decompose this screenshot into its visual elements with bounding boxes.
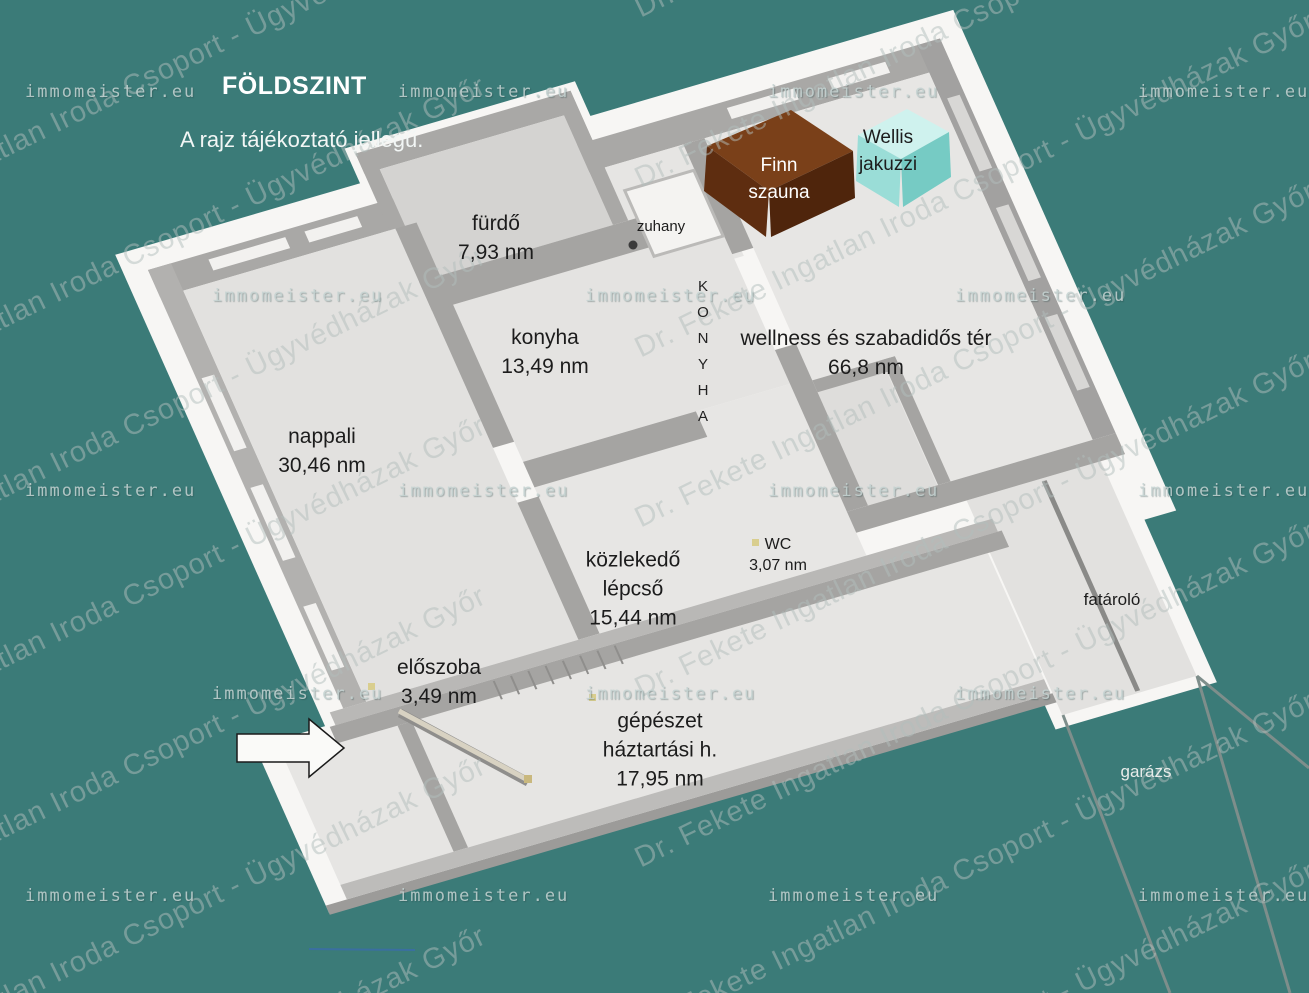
jacuzzi-name-line1: Wellis — [859, 124, 917, 151]
watermark-site: immomeister.eu — [25, 886, 196, 906]
watermark-site: immomeister.eu — [955, 286, 1126, 306]
room-name-line2: lépcső — [586, 575, 681, 604]
watermark-site: immomeister.eu — [212, 286, 383, 306]
jacuzzi-name-line2: jakuzzi — [859, 151, 917, 178]
room-area: 7,93 nm — [458, 238, 534, 267]
watermark-site: immomeister.eu — [768, 481, 939, 501]
room-name: nappali — [278, 422, 366, 451]
watermark-site: immomeister.eu — [25, 82, 196, 102]
room-label-konyha: konyha 13,49 nm — [501, 323, 589, 381]
room-label-eloszoba: előszoba 3,49 nm — [397, 653, 481, 711]
watermark-site: immomeister.eu — [768, 82, 939, 102]
room-name: zuhany — [637, 217, 685, 237]
room-name: konyha — [501, 323, 589, 352]
watermark-site: immomeister.eu — [1138, 82, 1309, 102]
watermark-site: immomeister.eu — [398, 481, 569, 501]
garage-outline — [1063, 676, 1309, 993]
sauna-name-line2: szauna — [748, 179, 809, 206]
garage-line-east — [1197, 676, 1290, 993]
watermark-site: immomeister.eu — [398, 886, 569, 906]
room-name: előszoba — [397, 653, 481, 682]
room-name: wellness és szabadidős tér — [741, 324, 992, 353]
room-area: 3,49 nm — [397, 682, 481, 711]
watermark-site: immomeister.eu — [212, 684, 383, 704]
room-label-furdo: fürdő 7,93 nm — [458, 209, 534, 267]
room-label-kozlekedo: közlekedő lépcső 15,44 nm — [586, 546, 681, 633]
underline-mark — [309, 949, 415, 950]
room-label-wellness: wellness és szabadidős tér 66,8 nm — [741, 324, 992, 382]
room-label-garazs: garázs — [1120, 761, 1171, 783]
watermark-site: immomeister.eu — [585, 286, 756, 306]
watermark-site: immomeister.eu — [398, 82, 569, 102]
page-title: FÖLDSZINT — [222, 72, 367, 101]
room-label-wc: WC 3,07 nm — [749, 534, 807, 576]
garage-line-west — [1063, 715, 1170, 993]
railing-end-cap — [524, 775, 532, 783]
room-label-fatarolo: fatároló — [1084, 589, 1141, 611]
watermark-site: immomeister.eu — [955, 684, 1126, 704]
shower-drain-dot — [629, 241, 638, 250]
room-area: 17,95 nm — [603, 765, 717, 794]
sauna-label: Finn szauna — [748, 152, 809, 206]
room-area: 3,07 nm — [749, 555, 807, 576]
room-label-nappali: nappali 30,46 nm — [278, 422, 366, 480]
room-name: fürdő — [458, 209, 534, 238]
sauna-name-line1: Finn — [748, 152, 809, 179]
kitchen-wall-text: KONYHA — [695, 278, 712, 434]
room-name: WC — [749, 534, 807, 555]
watermark-site: immomeister.eu — [25, 481, 196, 501]
room-area: 15,44 nm — [586, 604, 681, 633]
watermark-site: immomeister.eu — [1138, 886, 1309, 906]
room-area: 30,46 nm — [278, 451, 366, 480]
room-label-gepeszet: gépészet háztartási h. 17,95 nm — [603, 707, 717, 794]
floorplan-page: Dr. Fekete Ingatlan Iroda Csoport - Ügyv… — [0, 0, 1309, 993]
room-label-zuhany: zuhany — [637, 217, 685, 237]
watermark-site: immomeister.eu — [585, 684, 756, 704]
page-subtitle: A rajz tájékoztató jellegű. — [180, 127, 423, 153]
room-area: 66,8 nm — [741, 353, 992, 382]
watermark-site: immomeister.eu — [1138, 481, 1309, 501]
room-area: 13,49 nm — [501, 352, 589, 381]
room-name-line2: háztartási h. — [603, 736, 717, 765]
room-name-line1: közlekedő — [586, 546, 681, 575]
watermark-site: immomeister.eu — [768, 886, 939, 906]
room-name: garázs — [1120, 761, 1171, 783]
room-name: fatároló — [1084, 589, 1141, 611]
garage-line-north — [1197, 676, 1309, 768]
room-name-line1: gépészet — [603, 707, 717, 736]
jacuzzi-label: Wellis jakuzzi — [859, 124, 917, 178]
